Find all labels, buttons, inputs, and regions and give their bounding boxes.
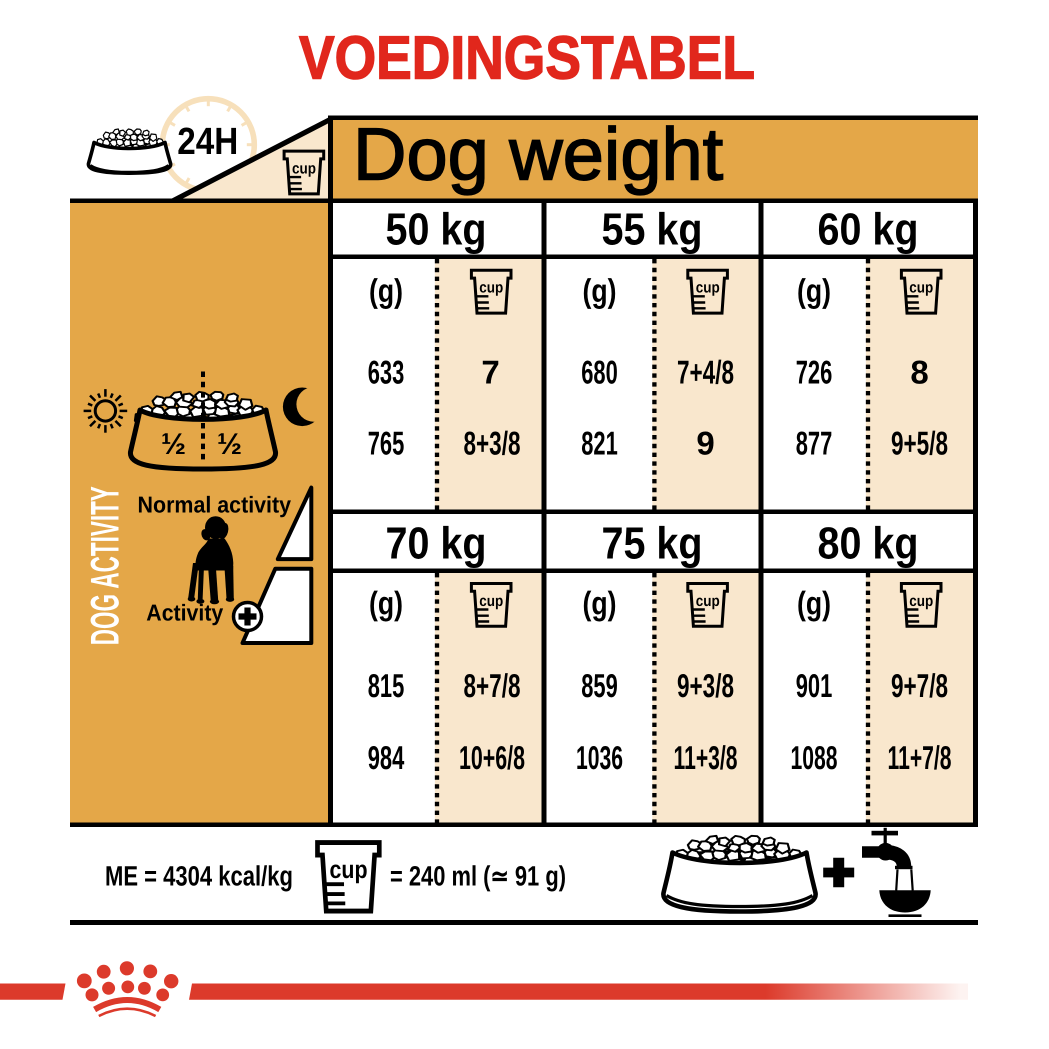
svg-text:(g): (g) bbox=[797, 272, 831, 309]
svg-text:DOG ACTIVITY: DOG ACTIVITY bbox=[83, 486, 127, 645]
svg-text:9+3/8: 9+3/8 bbox=[677, 667, 734, 704]
svg-text:ME = 4304 kcal/kg: ME = 4304 kcal/kg bbox=[105, 861, 293, 892]
svg-text:cup: cup bbox=[696, 280, 720, 297]
svg-text:633: 633 bbox=[368, 354, 405, 391]
svg-text:cup: cup bbox=[909, 593, 933, 610]
svg-text:11+7/8: 11+7/8 bbox=[888, 739, 952, 776]
svg-text:24H: 24H bbox=[177, 121, 238, 163]
svg-text:10+6/8: 10+6/8 bbox=[459, 739, 525, 776]
svg-text:8+3/8: 8+3/8 bbox=[464, 425, 521, 462]
svg-text:(g): (g) bbox=[369, 272, 403, 309]
svg-text:cup: cup bbox=[292, 161, 316, 178]
svg-text:8: 8 bbox=[910, 354, 928, 391]
svg-text:9+5/8: 9+5/8 bbox=[891, 425, 948, 462]
svg-text:11+3/8: 11+3/8 bbox=[674, 739, 738, 776]
svg-text:cup: cup bbox=[330, 856, 368, 884]
svg-text:cup: cup bbox=[479, 280, 503, 297]
svg-text:(g): (g) bbox=[369, 585, 403, 622]
svg-text:821: 821 bbox=[581, 425, 618, 462]
svg-text:(g): (g) bbox=[583, 585, 617, 622]
svg-text:984: 984 bbox=[368, 739, 405, 776]
svg-text:9+7/8: 9+7/8 bbox=[891, 667, 948, 704]
svg-text:726: 726 bbox=[796, 354, 833, 391]
svg-text:Dog weight: Dog weight bbox=[353, 113, 724, 196]
svg-text:60 kg: 60 kg bbox=[818, 204, 919, 255]
svg-text:(g): (g) bbox=[797, 585, 831, 622]
svg-text:VOEDINGSTABEL: VOEDINGSTABEL bbox=[299, 24, 755, 92]
svg-text:Activity: Activity bbox=[146, 600, 223, 626]
svg-text:75 kg: 75 kg bbox=[602, 518, 703, 569]
svg-text:cup: cup bbox=[479, 593, 503, 610]
svg-text:50 kg: 50 kg bbox=[386, 204, 487, 255]
svg-text:80 kg: 80 kg bbox=[818, 518, 919, 569]
svg-text:70 kg: 70 kg bbox=[386, 518, 487, 569]
svg-text:1088: 1088 bbox=[791, 739, 838, 776]
svg-text:Normal activity: Normal activity bbox=[138, 492, 292, 518]
svg-text:859: 859 bbox=[581, 667, 618, 704]
svg-text:815: 815 bbox=[368, 667, 405, 704]
svg-text:9: 9 bbox=[696, 425, 714, 462]
svg-text:½: ½ bbox=[161, 428, 186, 461]
svg-text:(g): (g) bbox=[583, 272, 617, 309]
svg-text:cup: cup bbox=[696, 593, 720, 610]
svg-text:7: 7 bbox=[481, 354, 499, 391]
svg-text:1036: 1036 bbox=[576, 739, 623, 776]
svg-text:cup: cup bbox=[909, 280, 933, 297]
svg-text:680: 680 bbox=[581, 354, 618, 391]
svg-text:7+4/8: 7+4/8 bbox=[677, 354, 734, 391]
svg-text:½: ½ bbox=[217, 428, 242, 461]
svg-text:765: 765 bbox=[368, 425, 405, 462]
svg-text:= 240 ml (≃ 91 g): = 240 ml (≃ 91 g) bbox=[390, 861, 566, 892]
svg-text:55 kg: 55 kg bbox=[602, 204, 703, 255]
svg-text:877: 877 bbox=[796, 425, 833, 462]
svg-text:901: 901 bbox=[796, 667, 833, 704]
svg-text:8+7/8: 8+7/8 bbox=[464, 667, 521, 704]
